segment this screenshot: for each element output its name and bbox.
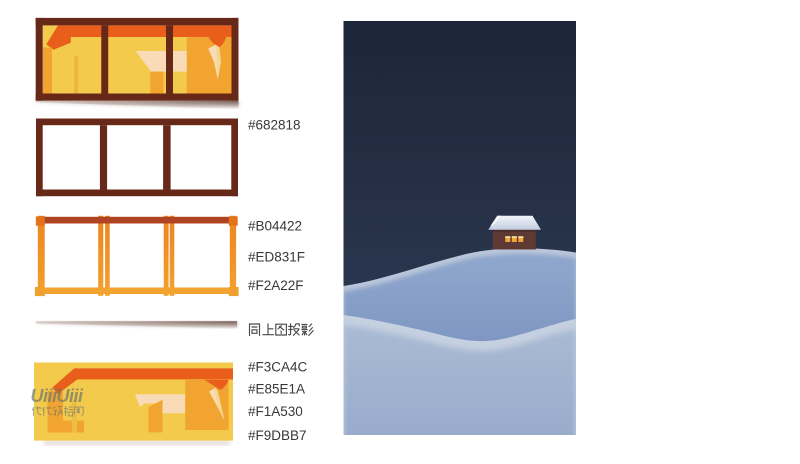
svg-text:#F9DBB7: #F9DBB7 <box>248 428 307 443</box>
svg-text:UiiiUiii: UiiiUiii <box>31 386 85 406</box>
svg-text:#ED831F: #ED831F <box>248 250 305 265</box>
svg-text:#F3CA4C: #F3CA4C <box>248 360 308 375</box>
svg-text:#F2A22F: #F2A22F <box>248 278 304 293</box>
svg-text:#E85E1A: #E85E1A <box>248 382 305 397</box>
svg-text:#B04422: #B04422 <box>248 219 302 234</box>
svg-text:#F1A530: #F1A530 <box>248 404 303 419</box>
svg-text:#682818: #682818 <box>248 118 301 133</box>
